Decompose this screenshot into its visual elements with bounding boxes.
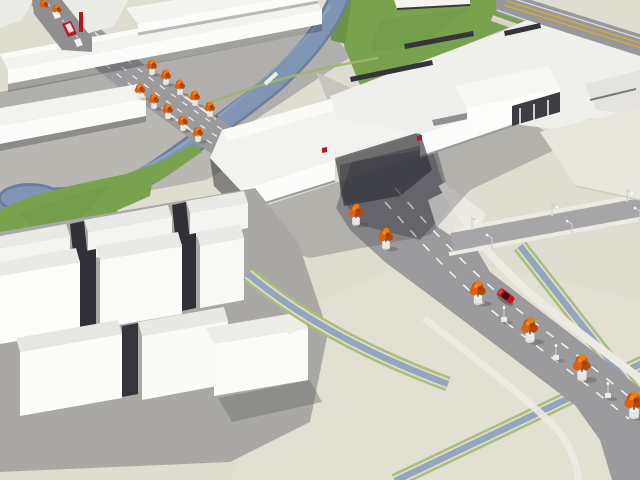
foliage: [193, 130, 198, 135]
foliage: [190, 94, 195, 99]
foliage: [163, 107, 168, 112]
foliage: [52, 8, 57, 13]
foliage: [521, 324, 530, 333]
foliage: [152, 63, 155, 66]
foliage: [161, 73, 166, 78]
foliage: [154, 97, 157, 100]
foliage: [478, 286, 483, 291]
lamp-head: [566, 220, 569, 223]
foliage-highlight: [55, 6, 57, 8]
lamp-head: [631, 192, 634, 195]
foliage-highlight: [578, 359, 582, 363]
lamp-head: [556, 206, 559, 209]
foliage: [168, 107, 171, 110]
foliage: [205, 105, 210, 110]
cluster-gap-b2: [182, 233, 196, 311]
foliage-highlight: [629, 396, 633, 400]
red-wall-stripe: [79, 12, 83, 32]
architectural-masterplan-render: [0, 0, 640, 480]
foliage: [348, 209, 356, 217]
foliage: [624, 398, 634, 408]
lamp-head: [503, 306, 506, 309]
cluster-gap-b1: [80, 249, 96, 331]
foliage: [210, 105, 213, 108]
foliage-highlight: [137, 86, 139, 88]
foliage-highlight: [177, 82, 179, 84]
foliage: [378, 233, 386, 241]
foliage: [470, 287, 478, 295]
cluster-gap-c1: [122, 323, 138, 397]
foliage: [530, 323, 535, 328]
lamp-head: [486, 234, 489, 237]
foliage: [195, 94, 198, 97]
foliage: [178, 119, 183, 124]
foliage-highlight: [151, 96, 153, 98]
cluster-b2-face: [100, 246, 182, 328]
foliage-highlight: [352, 207, 355, 210]
foliage: [180, 83, 183, 86]
foliage: [39, 3, 44, 8]
foliage-highlight: [149, 62, 151, 64]
foliage-highlight: [195, 129, 197, 131]
foliage: [149, 97, 154, 102]
foliage: [634, 398, 639, 403]
foliage: [386, 233, 390, 237]
lamp-head: [555, 344, 558, 347]
foliage: [44, 2, 47, 5]
lamp-head: [607, 382, 610, 385]
foliage-highlight: [192, 93, 194, 95]
foliage-highlight: [165, 106, 167, 108]
foliage: [166, 73, 169, 76]
foliage-highlight: [42, 1, 44, 3]
foliage: [147, 63, 152, 68]
lamp-head: [634, 207, 637, 210]
foliage: [582, 360, 587, 365]
cluster-b3-face: [200, 238, 244, 308]
foliage-highlight: [474, 284, 478, 288]
foliage: [140, 87, 143, 90]
foliage: [183, 119, 186, 122]
foliage: [57, 7, 60, 10]
screenshot-root: [0, 0, 640, 480]
foliage-highlight: [207, 104, 209, 106]
foliage-highlight: [526, 321, 530, 325]
foliage: [198, 130, 201, 133]
facade-red-accent-b: [417, 135, 422, 141]
foliage-highlight: [382, 231, 385, 234]
foliage-highlight: [180, 118, 182, 120]
lamp-head: [476, 220, 479, 223]
facade-red-accent-a: [322, 147, 327, 153]
foliage: [356, 209, 360, 213]
foliage: [135, 87, 140, 92]
foliage-highlight: [163, 72, 165, 74]
foliage: [175, 83, 180, 88]
foliage: [573, 361, 582, 370]
